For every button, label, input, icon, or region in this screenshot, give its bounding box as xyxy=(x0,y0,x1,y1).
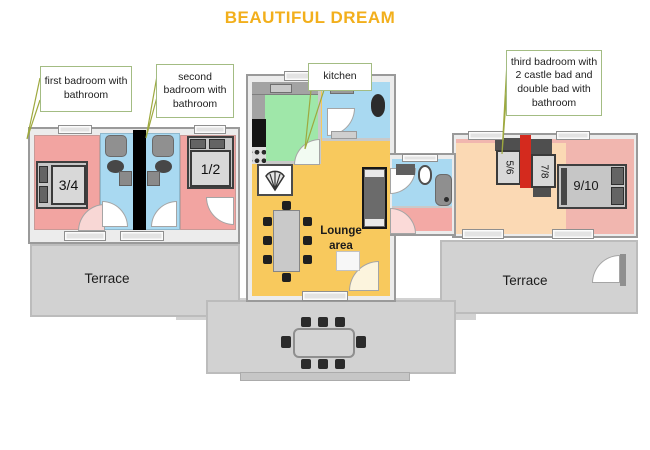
window xyxy=(402,154,438,162)
outdoor-chair xyxy=(318,359,328,369)
dining-table xyxy=(273,210,300,272)
sink xyxy=(119,171,132,186)
sofa-cushion xyxy=(365,170,384,177)
window xyxy=(120,231,164,241)
outdoor-chair xyxy=(281,336,291,348)
floor-plan-page: BEAUTIFUL DREAM Terrace Terrace 3/4 1/2 xyxy=(0,0,650,450)
callout-kitchen: kitchen xyxy=(308,63,372,91)
terrace-door-wall-stub xyxy=(620,254,626,286)
dining-chair xyxy=(303,236,312,245)
pillow xyxy=(611,167,624,185)
dining-chair xyxy=(282,273,291,282)
dining-chair xyxy=(303,217,312,226)
callout-second-bedroom: second badroom with bathroom xyxy=(156,64,234,118)
dining-chair xyxy=(263,255,272,264)
bed-7-8-label: 7/8 xyxy=(531,154,556,188)
outdoor-chair xyxy=(335,317,345,327)
window xyxy=(58,125,92,134)
window xyxy=(302,291,348,301)
sink xyxy=(396,164,415,175)
toilet xyxy=(418,165,432,185)
stove xyxy=(252,119,266,147)
outdoor-chair xyxy=(301,359,311,369)
outdoor-chair xyxy=(335,359,345,369)
bed-1-2-label: 1/2 xyxy=(190,150,231,187)
shower xyxy=(152,135,174,157)
dining-chair xyxy=(303,255,312,264)
inner-wall xyxy=(392,206,452,208)
red-divider-bar xyxy=(520,135,531,188)
pillow xyxy=(39,186,48,203)
sink xyxy=(147,171,160,186)
fireplace-fan-icon xyxy=(262,168,288,192)
window xyxy=(462,229,504,239)
pillow xyxy=(209,139,225,149)
callout-first-bedroom: first badroom with bathroom xyxy=(40,66,132,112)
stove-burners xyxy=(252,147,266,164)
deck-step xyxy=(240,372,410,381)
page-title: BEAUTIFUL DREAM xyxy=(155,8,465,28)
bed-7-8-text: 7/8 xyxy=(538,164,549,178)
terrace-left-label: Terrace xyxy=(62,271,152,286)
pillow xyxy=(190,139,206,149)
kitchen-sink xyxy=(270,84,292,93)
bed-3-4-label: 3/4 xyxy=(51,165,86,205)
window xyxy=(64,231,106,241)
outdoor-chair xyxy=(356,336,366,348)
terrace-right-label: Terrace xyxy=(485,273,565,288)
pillow xyxy=(39,166,48,183)
bed-9-10-label: 9/10 xyxy=(564,178,608,193)
outdoor-chair xyxy=(318,317,328,327)
window xyxy=(552,229,594,239)
dining-chair xyxy=(263,236,272,245)
pillow xyxy=(611,187,624,205)
dining-chair xyxy=(263,217,272,226)
fireplace xyxy=(257,164,293,196)
callout-third-bedroom: third badroom with 2 castle bad and doub… xyxy=(506,50,602,116)
black-divider-bar xyxy=(133,130,146,230)
bed-5-6-label: 5/6 xyxy=(496,150,521,185)
shower-drain xyxy=(444,197,449,202)
dining-chair xyxy=(282,201,291,210)
lounge-label: Lounge area xyxy=(312,224,370,254)
bunk-foot xyxy=(533,188,551,197)
window xyxy=(556,131,590,140)
shower xyxy=(435,174,452,206)
shower xyxy=(105,135,127,157)
outdoor-chair xyxy=(301,317,311,327)
bed-5-6-text: 5/6 xyxy=(503,161,514,175)
window xyxy=(194,125,226,134)
cabinet xyxy=(336,251,360,271)
bathroom-shelf xyxy=(331,131,357,139)
toilet xyxy=(371,94,385,117)
window xyxy=(468,131,504,140)
outdoor-table xyxy=(293,328,355,358)
bunk-head xyxy=(531,139,552,154)
